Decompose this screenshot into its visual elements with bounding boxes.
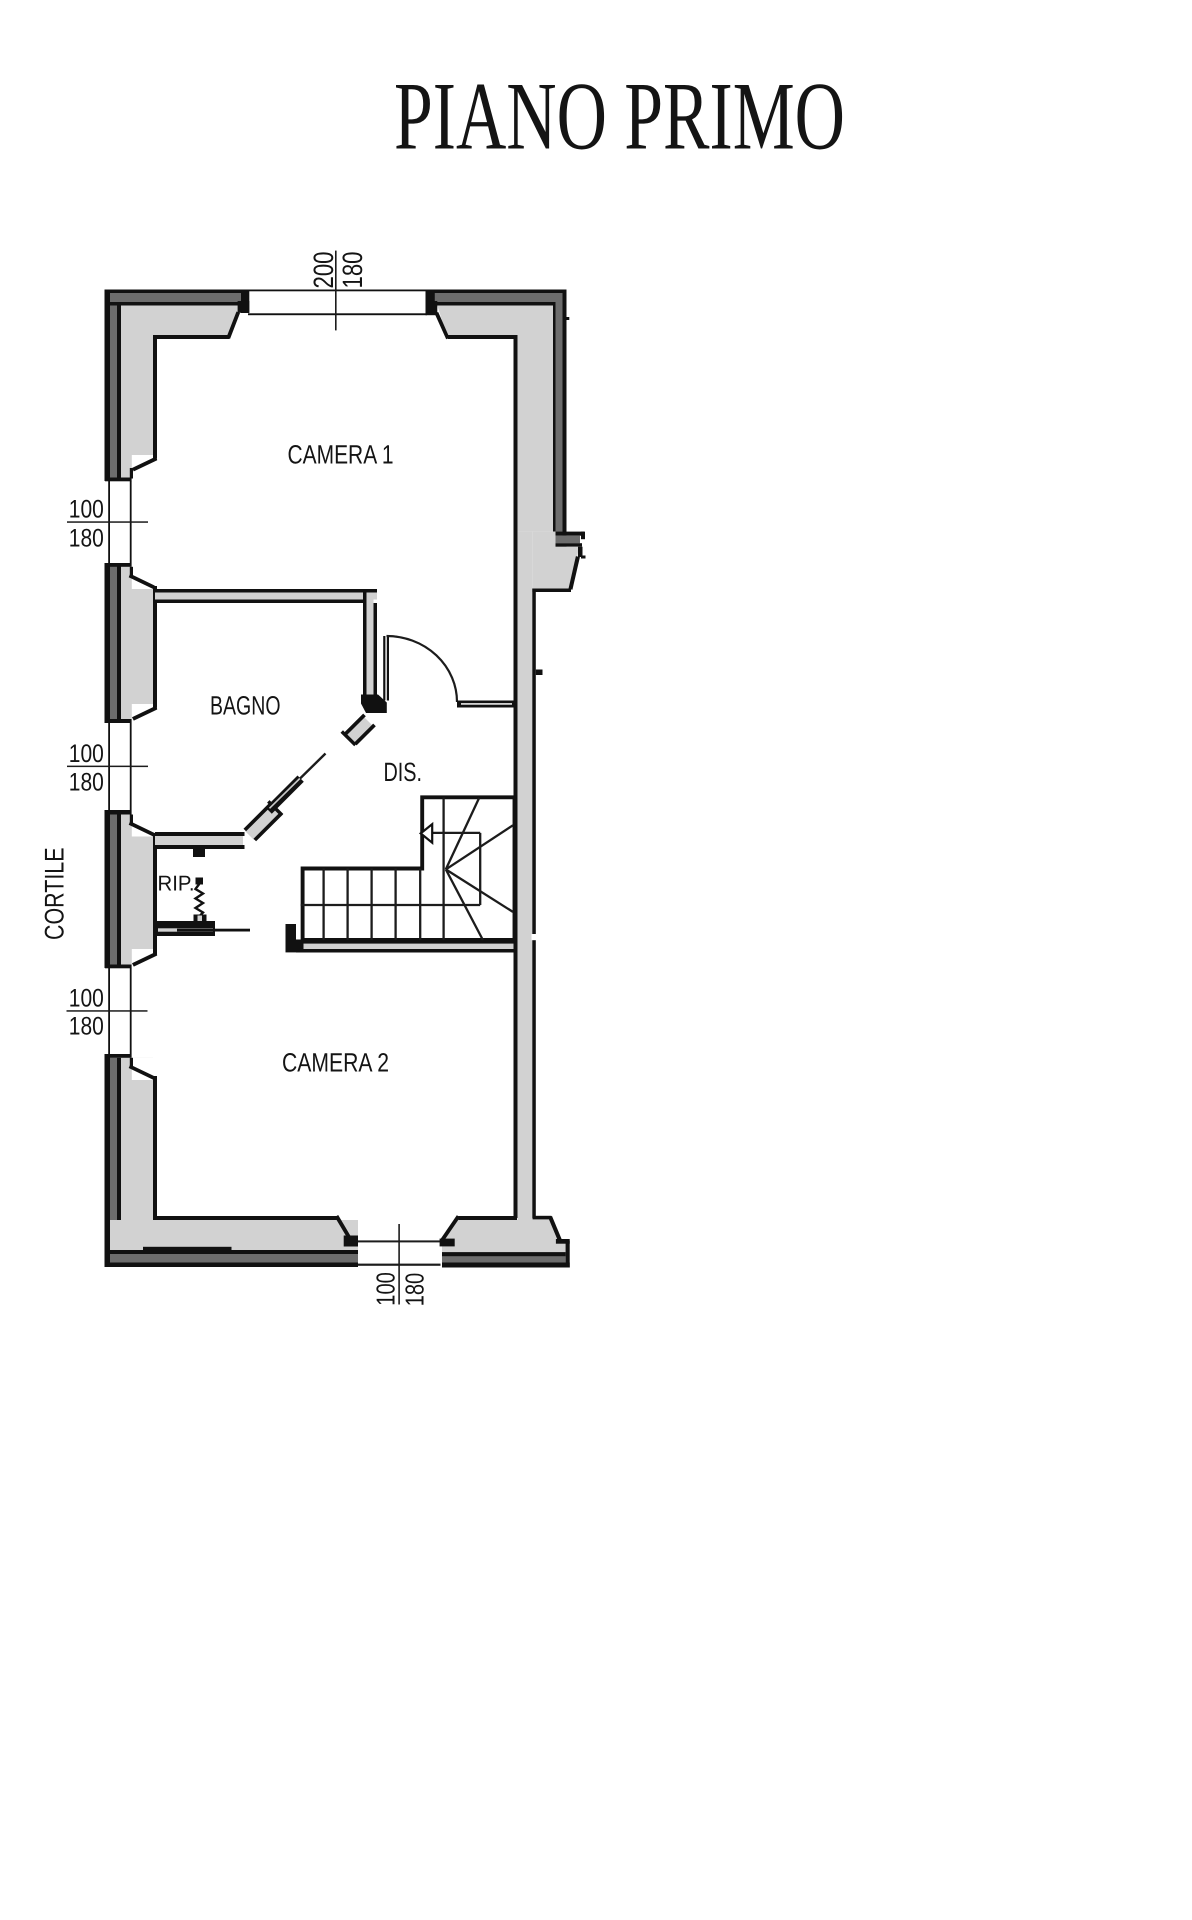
svg-text:CAMERA 1: CAMERA 1 — [288, 440, 394, 470]
svg-text:100: 100 — [69, 496, 104, 524]
svg-text:200: 200 — [308, 252, 339, 289]
svg-text:180: 180 — [69, 768, 104, 796]
svg-text:RIP.: RIP. — [158, 872, 195, 896]
svg-text:100: 100 — [69, 740, 104, 768]
svg-text:180: 180 — [337, 252, 368, 289]
svg-text:CAMERA 2: CAMERA 2 — [282, 1048, 389, 1078]
svg-text:CORTILE: CORTILE — [39, 848, 69, 941]
svg-text:BAGNO: BAGNO — [210, 691, 281, 721]
svg-text:180: 180 — [69, 1013, 104, 1041]
svg-text:DIS.: DIS. — [384, 757, 423, 787]
svg-text:PIANO PRIMO: PIANO PRIMO — [394, 63, 845, 170]
svg-text:180: 180 — [399, 1273, 429, 1307]
svg-text:180: 180 — [69, 524, 104, 552]
svg-text:100: 100 — [69, 984, 104, 1012]
svg-text:100: 100 — [371, 1272, 401, 1306]
